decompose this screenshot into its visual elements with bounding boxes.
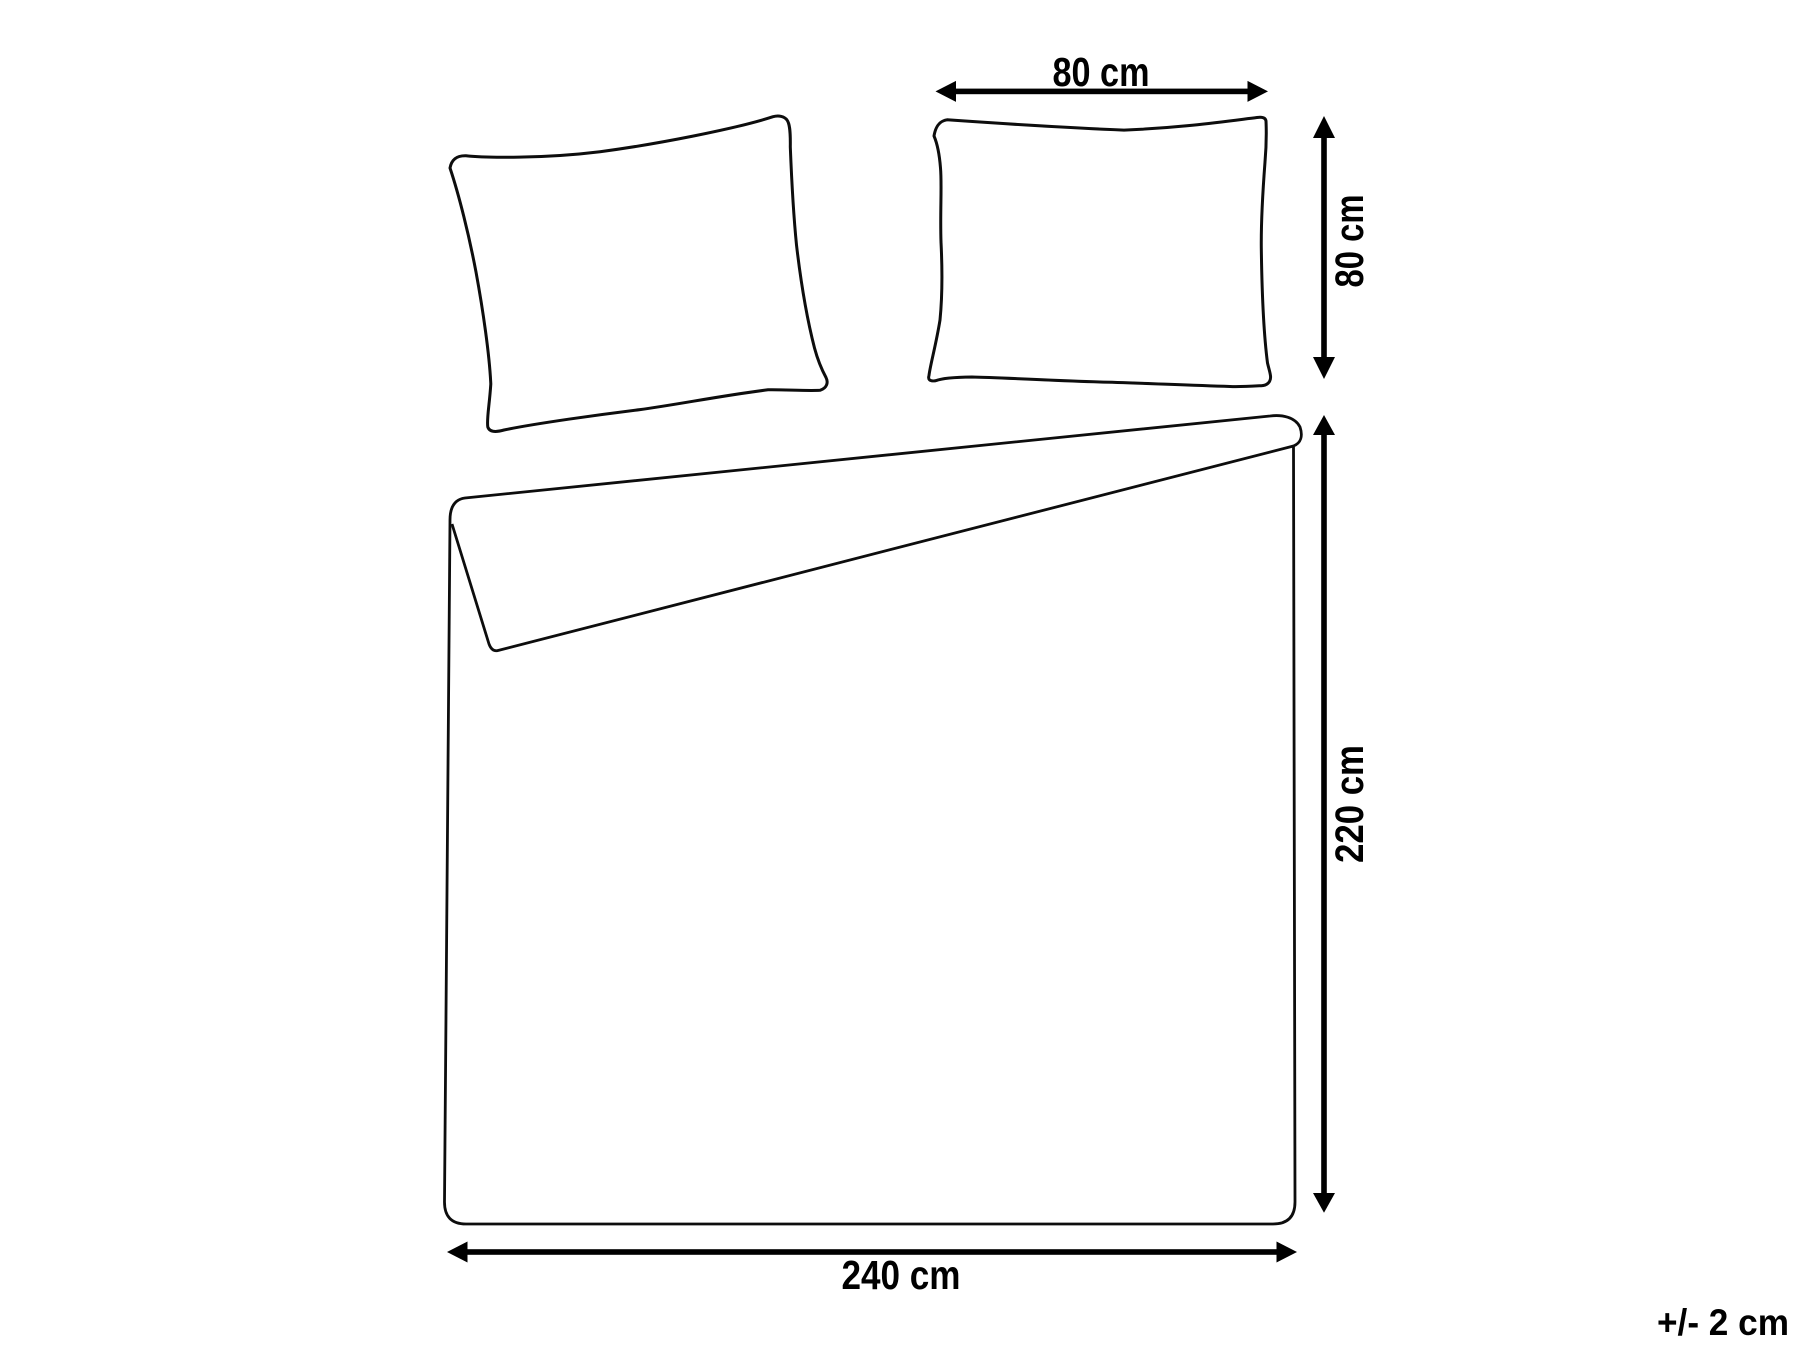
- svg-text:220 cm: 220 cm: [1328, 745, 1372, 863]
- svg-text:240 cm: 240 cm: [842, 1252, 961, 1298]
- svg-text:80 cm: 80 cm: [1328, 195, 1372, 288]
- svg-text:80 cm: 80 cm: [1053, 49, 1150, 95]
- svg-text:+/- 2 cm: +/- 2 cm: [1657, 1302, 1789, 1343]
